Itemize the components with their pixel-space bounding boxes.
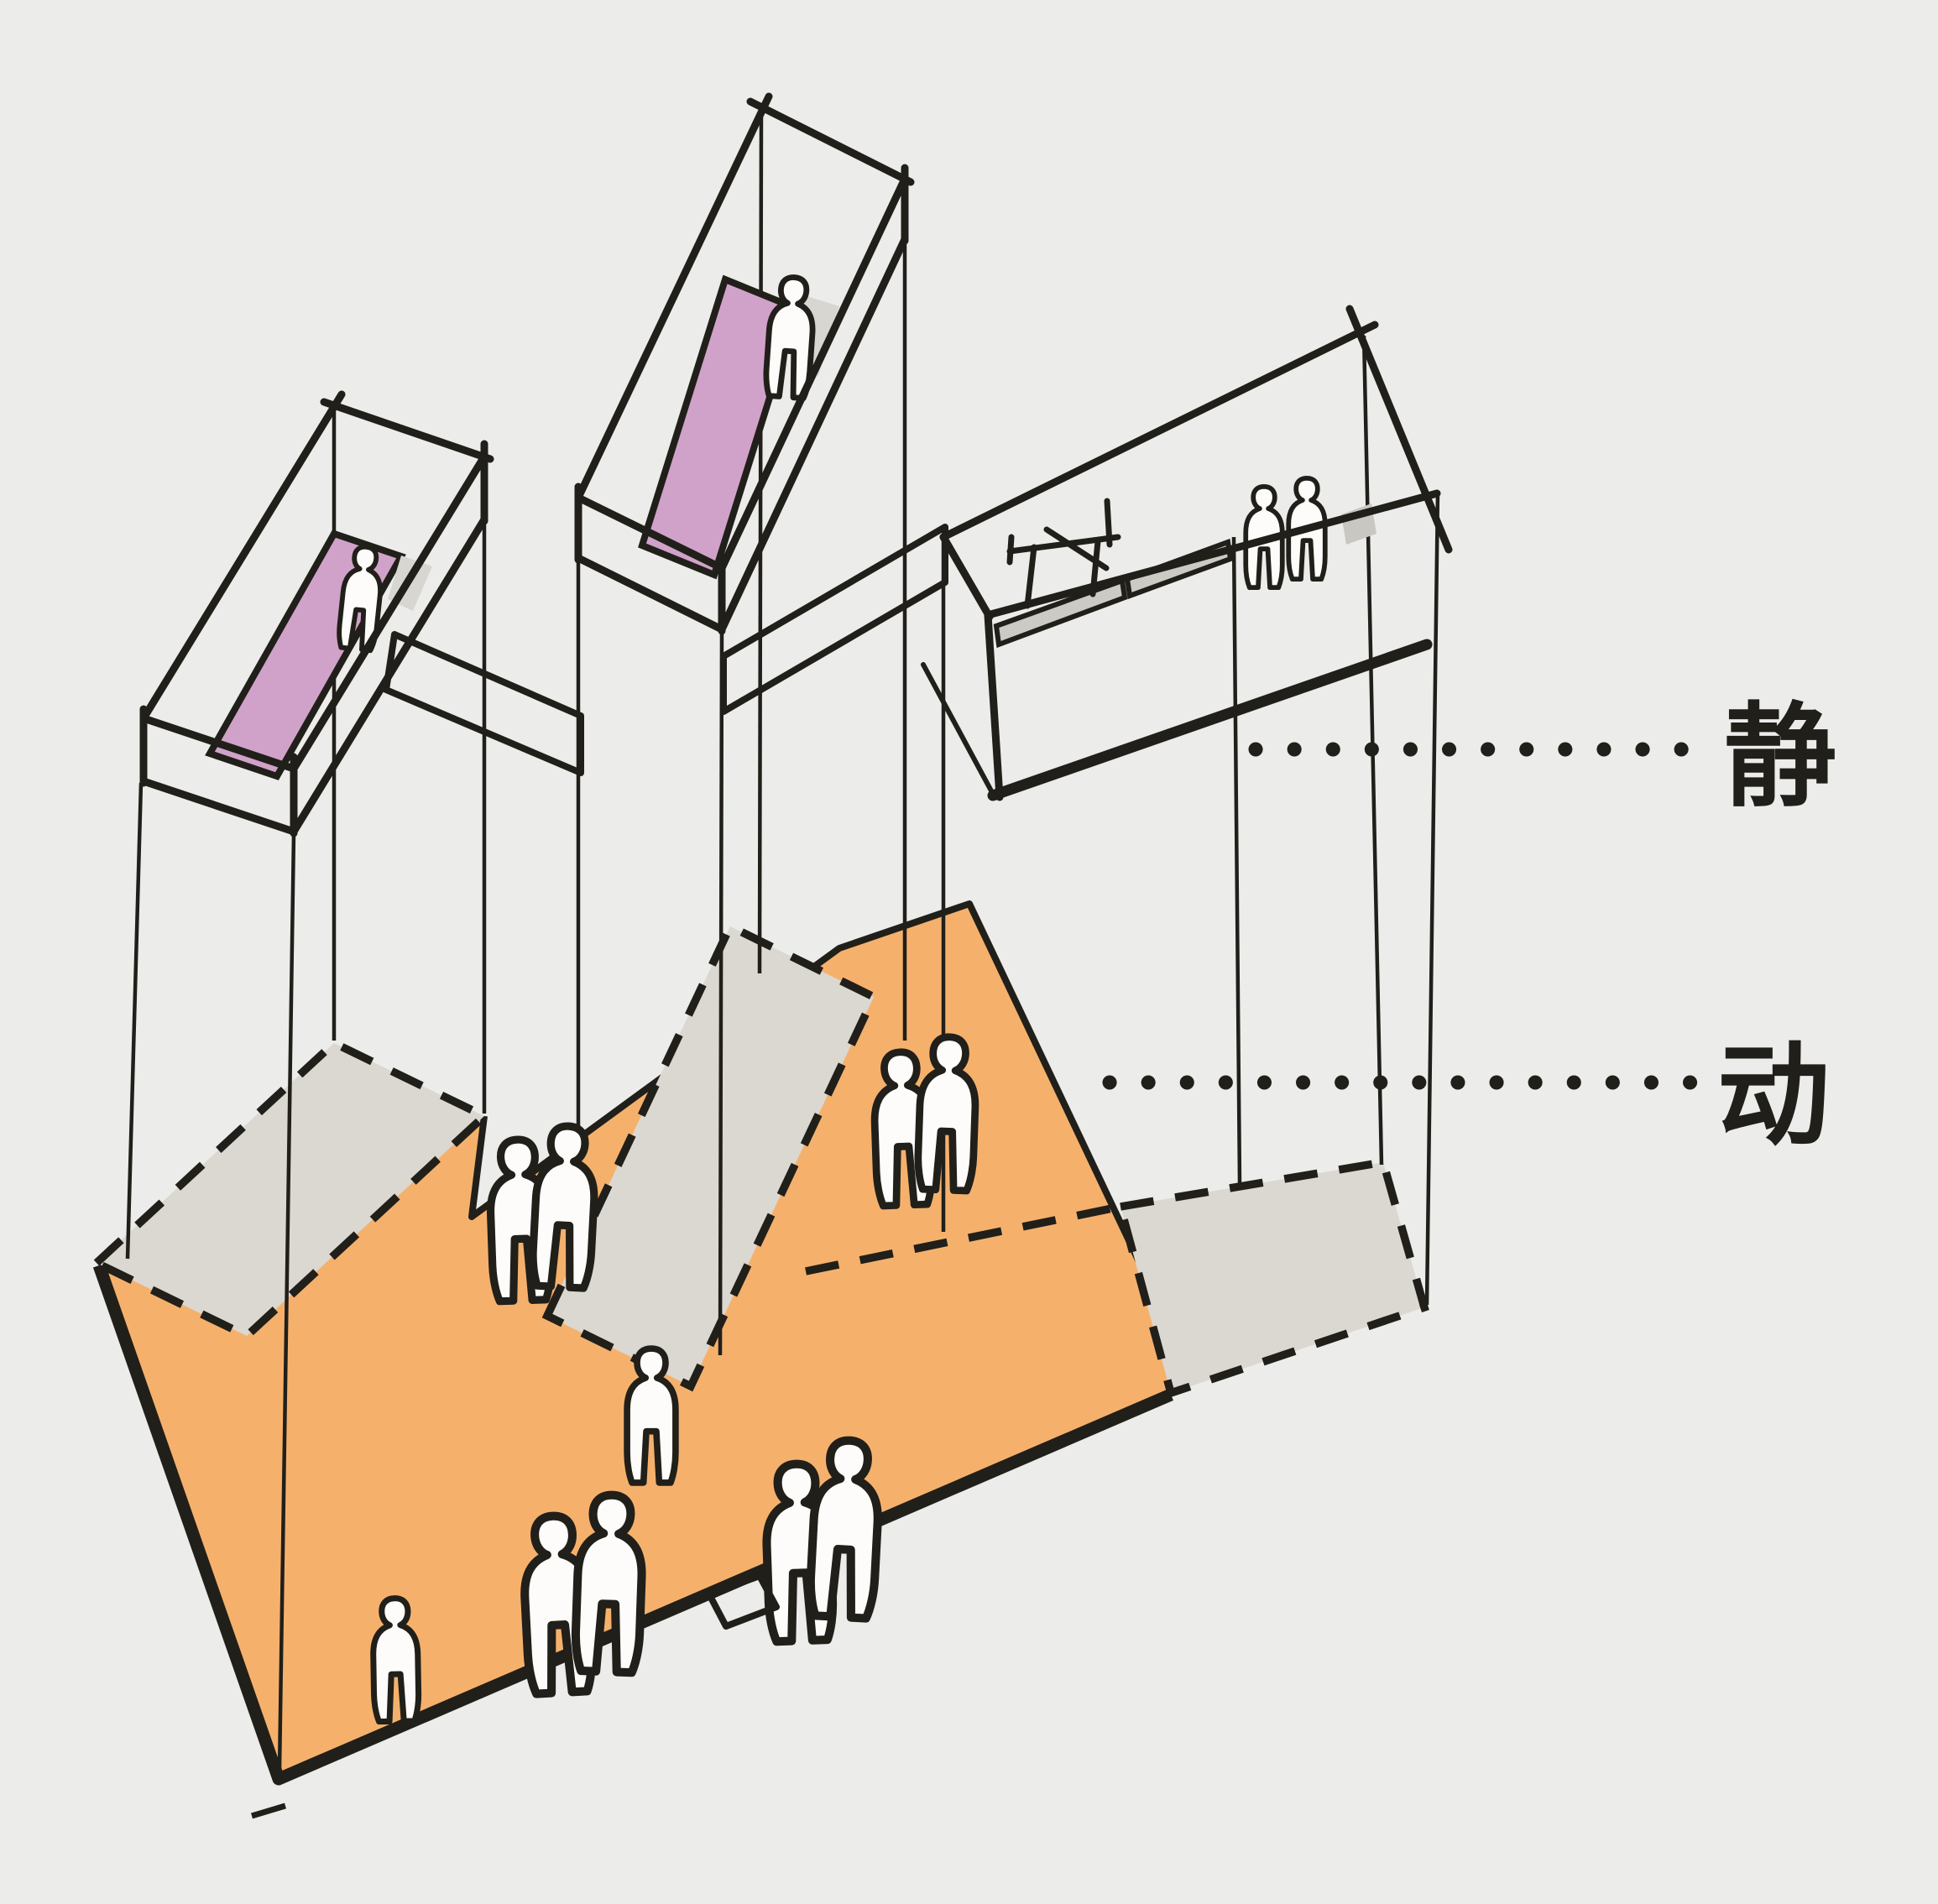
box-right-floor-strip-a xyxy=(996,581,1125,644)
stray-tick xyxy=(252,1806,285,1816)
annotations: 静 动 xyxy=(1110,691,1836,1161)
label-active: 动 xyxy=(1717,1030,1830,1161)
bridges xyxy=(386,527,945,773)
label-quiet: 静 xyxy=(1724,691,1836,822)
elevated-box-middle xyxy=(578,97,911,631)
ground-plane xyxy=(97,904,1424,1816)
footprint-band-right xyxy=(1120,1162,1424,1393)
elevated-box-left xyxy=(144,394,490,833)
sketch-canvas: 静 动 xyxy=(0,0,1938,1904)
architectural-sketch-diagram: 静 动 xyxy=(0,0,1938,1904)
